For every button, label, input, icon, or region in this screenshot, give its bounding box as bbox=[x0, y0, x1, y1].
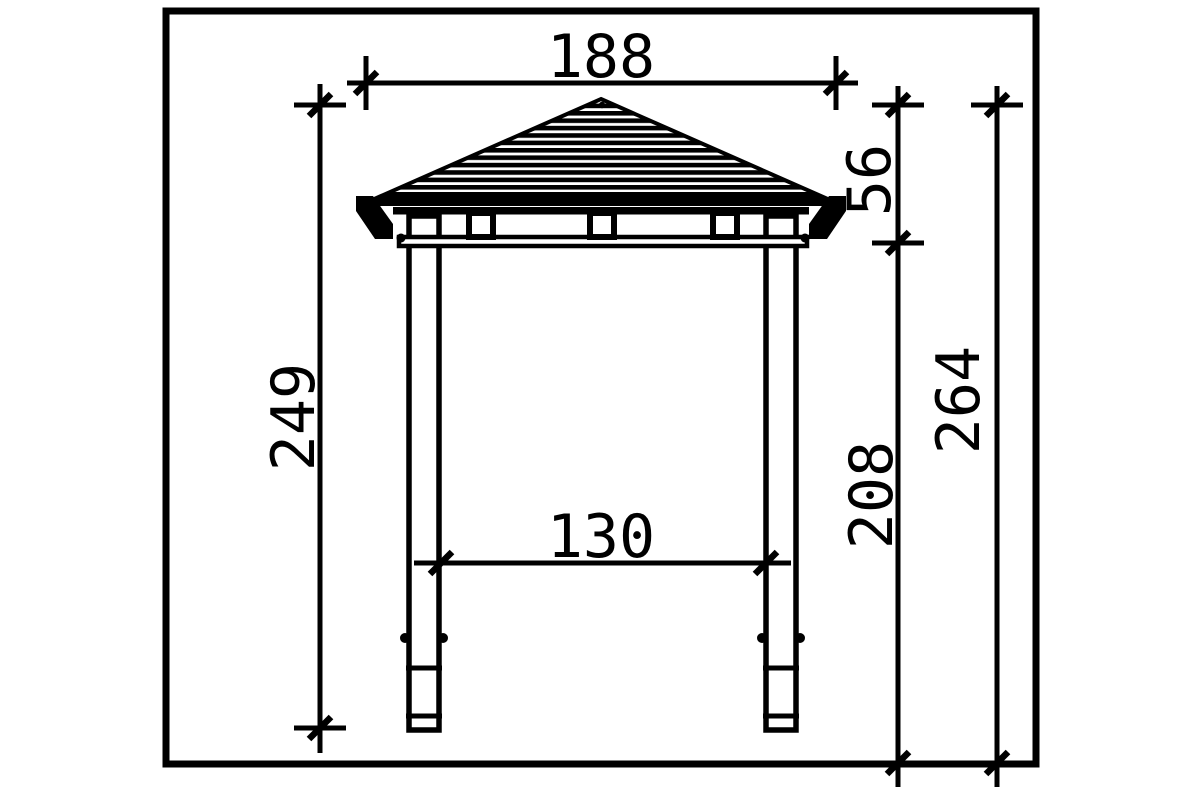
dim-post-spacing-value: 130 bbox=[547, 502, 655, 572]
left-post-bolt bbox=[400, 633, 410, 643]
beam-bolt bbox=[801, 234, 810, 243]
beam-bolt bbox=[397, 234, 406, 243]
dim-structure-height-value: 249 bbox=[259, 363, 329, 471]
dim-roof-height-value: 56 bbox=[835, 144, 905, 216]
right-post-bolt bbox=[757, 633, 767, 643]
drawing-canvas: 188 249 56 208 264 130 bbox=[0, 0, 1200, 800]
right-post-bolt bbox=[795, 633, 805, 643]
gazebo-elevation-drawing: 188 249 56 208 264 130 bbox=[0, 0, 1200, 800]
left-post-bolt bbox=[438, 633, 448, 643]
dim-total-height-value: 264 bbox=[924, 346, 994, 454]
dim-roof-width-value: 188 bbox=[547, 22, 655, 92]
rafter-block bbox=[469, 213, 493, 237]
dim-post-clear-height-value: 208 bbox=[837, 441, 907, 549]
roof-plate bbox=[393, 207, 809, 215]
rafter-block bbox=[590, 213, 614, 237]
rafter-block bbox=[713, 213, 737, 237]
roof-eave-edge bbox=[363, 192, 839, 204]
right-post bbox=[757, 216, 805, 730]
roof-apex-dot bbox=[599, 102, 605, 108]
left-post bbox=[400, 216, 448, 730]
